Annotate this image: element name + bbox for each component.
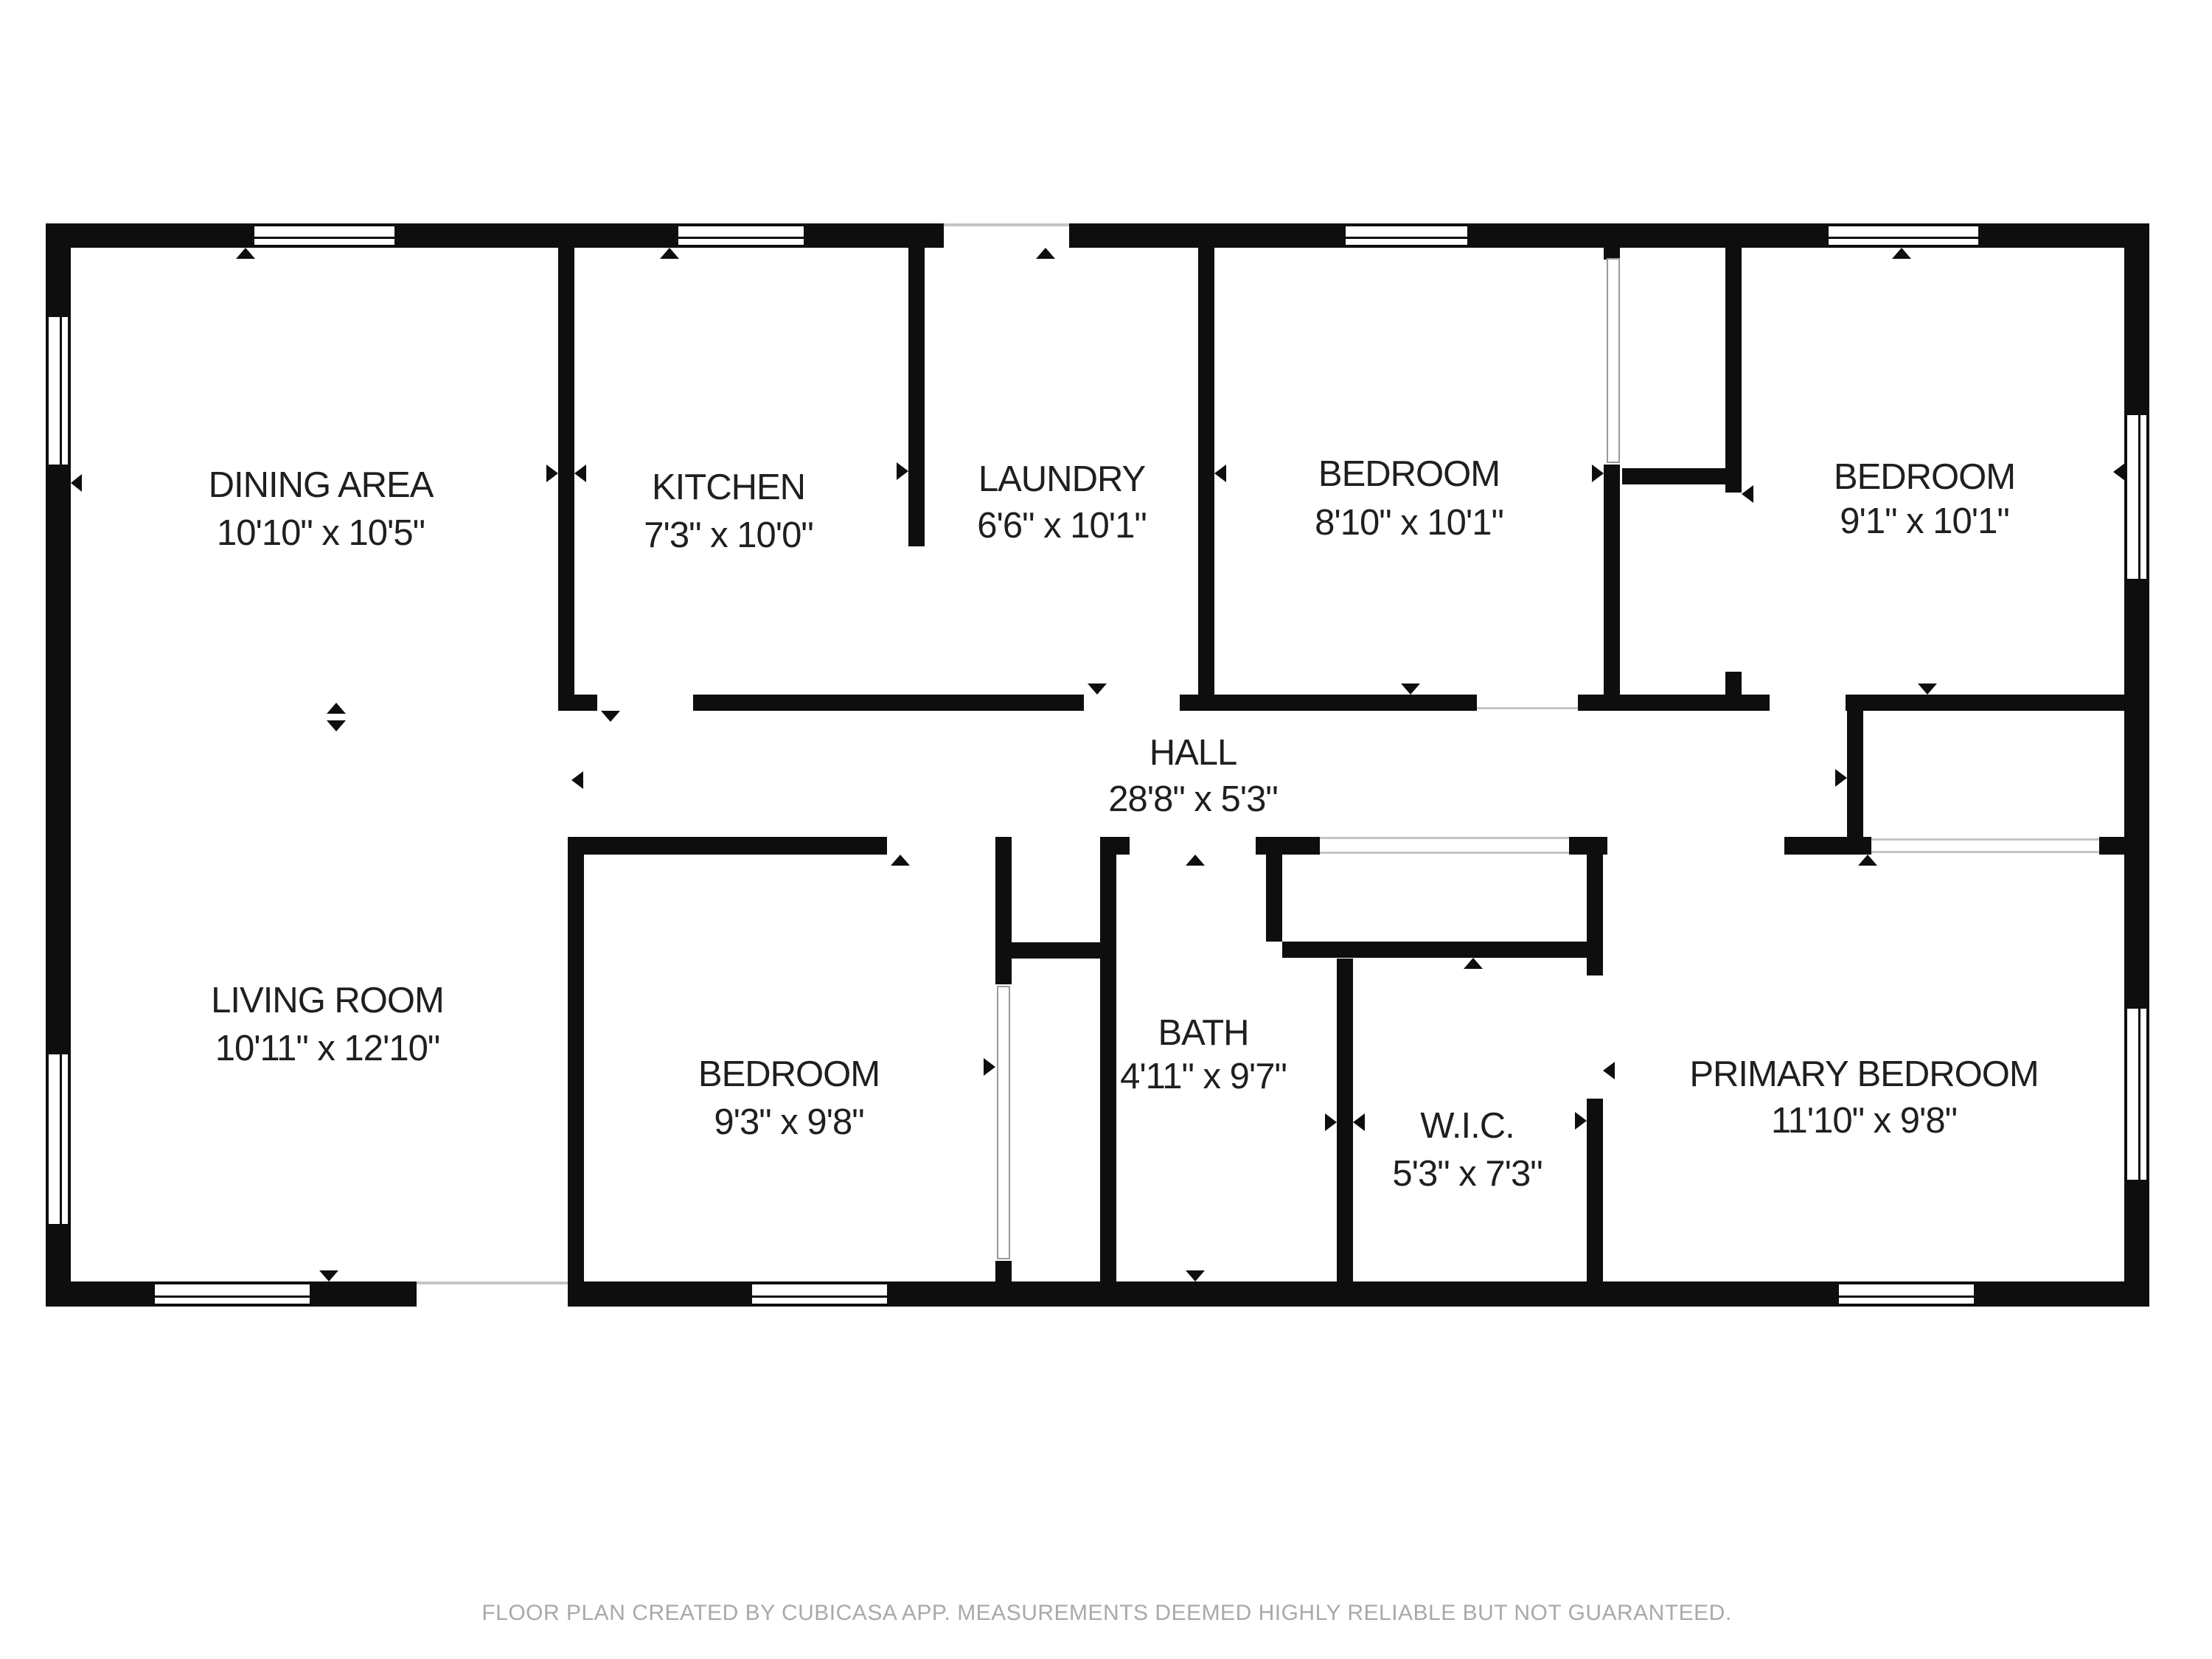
window-cap — [2124, 1001, 2149, 1009]
wall — [317, 1281, 417, 1307]
window-cap — [1821, 223, 1829, 248]
wall — [894, 1281, 1832, 1307]
wall — [568, 1281, 745, 1307]
window-pane-line — [1341, 237, 1472, 239]
wall — [2124, 223, 2149, 408]
room-label-w-i-c-9: W.I.C. — [1420, 1105, 1514, 1147]
door-arrow-icon — [71, 474, 82, 492]
opening-line — [1320, 852, 1569, 854]
wall — [1266, 853, 1282, 942]
door-arrow-icon — [546, 465, 558, 482]
door-leaf — [997, 986, 1010, 1259]
window — [1821, 223, 1986, 248]
wall — [1282, 942, 1587, 958]
wall — [908, 248, 925, 546]
window-cap — [1832, 1281, 1839, 1307]
room-dimensions-bedroom-4: 9'1" x 10'1" — [1840, 501, 2008, 542]
window-cap — [147, 1281, 155, 1307]
door-arrow-icon — [1835, 769, 1847, 787]
wall — [46, 472, 71, 1047]
door-arrow-icon — [1858, 855, 1877, 866]
window-cap — [745, 1281, 752, 1307]
door-arrow-icon — [891, 855, 910, 866]
opening-line — [417, 1281, 568, 1284]
window — [1338, 223, 1475, 248]
door-arrow-icon — [574, 465, 586, 482]
wall — [2124, 1187, 2149, 1307]
door-arrow-icon — [2113, 463, 2125, 481]
wall — [1846, 695, 2127, 711]
wall — [1100, 837, 1130, 855]
window — [247, 223, 402, 248]
door-arrow-icon — [327, 720, 346, 731]
room-dimensions-primary-bedroom-10: 11'10" x 9'8" — [1771, 1100, 1957, 1141]
window-cap — [1978, 223, 1986, 248]
floor-plan: FLOOR PLAN CREATED BY CUBICASA APP. MEAS… — [0, 0, 2212, 1659]
wall — [1604, 465, 1620, 711]
room-label-primary-bedroom-10: PRIMARY BEDROOM — [1689, 1054, 2038, 1095]
opening-line — [1320, 837, 1569, 839]
wall — [46, 223, 71, 310]
window-cap — [46, 1224, 71, 1231]
room-label-dining-area-0: DINING AREA — [209, 465, 434, 506]
window-pane-line — [1824, 237, 1983, 239]
door-arrow-icon — [1325, 1113, 1337, 1131]
wall — [568, 837, 584, 1307]
wall — [693, 695, 1084, 711]
door-arrow-icon — [1401, 684, 1420, 695]
door-arrow-icon — [1353, 1113, 1365, 1131]
wall — [1725, 248, 1742, 493]
door-arrow-icon — [601, 711, 620, 722]
wall — [2099, 837, 2127, 855]
wall — [1587, 1099, 1603, 1281]
door-arrow-icon — [1592, 465, 1604, 482]
opening-line — [1871, 851, 2099, 853]
window-pane-line — [674, 237, 808, 239]
window-pane-line — [2138, 1004, 2140, 1184]
wall — [402, 223, 671, 248]
window — [2124, 408, 2149, 586]
wall — [1198, 248, 1214, 711]
wall — [584, 837, 887, 855]
room-label-kitchen-1: KITCHEN — [652, 467, 805, 508]
door-arrow-icon — [1603, 1062, 1615, 1079]
window — [147, 1281, 317, 1307]
room-label-bath-8: BATH — [1158, 1012, 1248, 1054]
wall — [1256, 837, 1320, 855]
room-dimensions-dining-area-0: 10'10" x 10'5" — [217, 512, 425, 554]
room-label-living-room-6: LIVING ROOM — [211, 980, 444, 1021]
room-dimensions-w-i-c-9: 5'3" x 7'3" — [1392, 1153, 1542, 1194]
wall — [1847, 711, 1863, 838]
window-cap — [1974, 1281, 1981, 1307]
room-label-bedroom-3: BEDROOM — [1318, 453, 1500, 495]
window-pane-line — [1834, 1295, 1978, 1298]
room-label-bedroom-7: BEDROOM — [698, 1054, 880, 1095]
room-dimensions-bedroom-3: 8'10" x 10'1" — [1315, 502, 1503, 543]
door-arrow-icon — [660, 248, 679, 259]
room-label-laundry-2: LAUNDRY — [978, 459, 1145, 500]
window-pane-line — [60, 313, 62, 469]
wall — [811, 223, 944, 248]
window — [671, 223, 811, 248]
wall — [1012, 942, 1100, 959]
room-dimensions-bath-8: 4'11" x 9'7" — [1120, 1056, 1287, 1097]
room-label-hall-5: HALL — [1150, 732, 1237, 773]
wall — [574, 695, 597, 711]
window — [2124, 1001, 2149, 1187]
window-pane-line — [60, 1050, 62, 1228]
window — [1832, 1281, 1981, 1307]
wall — [1100, 837, 1116, 1307]
room-dimensions-kitchen-1: 7'3" x 10'0" — [644, 515, 813, 556]
door-arrow-icon — [984, 1058, 995, 1076]
door-arrow-icon — [1186, 855, 1205, 866]
door-leaf — [1607, 258, 1620, 463]
window-cap — [1467, 223, 1475, 248]
wall — [1622, 468, 1725, 484]
wall — [1069, 223, 1338, 248]
door-arrow-icon — [1575, 1112, 1587, 1130]
window-cap — [394, 223, 402, 248]
door-arrow-icon — [1186, 1270, 1205, 1281]
window-pane-line — [250, 237, 399, 239]
door-arrow-icon — [236, 248, 255, 259]
wall — [2124, 586, 2149, 1001]
window-cap — [247, 223, 254, 248]
wall — [46, 223, 247, 248]
door-arrow-icon — [1214, 465, 1226, 482]
wall — [995, 1261, 1012, 1281]
wall — [558, 248, 574, 711]
window-cap — [2124, 579, 2149, 586]
door-arrow-icon — [1892, 248, 1911, 259]
window-cap — [887, 1281, 894, 1307]
window-cap — [2124, 1180, 2149, 1187]
door-arrow-icon — [571, 771, 583, 789]
door-arrow-icon — [1464, 958, 1483, 969]
door-arrow-icon — [1036, 248, 1055, 259]
window-cap — [46, 310, 71, 317]
opening-line — [1477, 707, 1578, 709]
wall — [1784, 837, 1871, 855]
wall — [1569, 837, 1607, 855]
room-dimensions-laundry-2: 6'6" x 10'1" — [977, 505, 1146, 546]
opening-line — [1871, 838, 2099, 841]
window-cap — [2124, 408, 2149, 415]
door-arrow-icon — [897, 462, 908, 480]
window-cap — [1338, 223, 1346, 248]
room-dimensions-hall-5: 28'8" x 5'3" — [1108, 779, 1277, 820]
door-arrow-icon — [1742, 485, 1753, 503]
room-dimensions-living-room-6: 10'11" x 12'10" — [215, 1028, 440, 1069]
footer-disclaimer: FLOOR PLAN CREATED BY CUBICASA APP. MEAS… — [481, 1601, 1731, 1626]
window-cap — [671, 223, 678, 248]
window-pane-line — [150, 1295, 314, 1298]
window — [745, 1281, 894, 1307]
wall — [46, 1231, 71, 1307]
wall — [1578, 695, 1770, 711]
window-cap — [46, 1047, 71, 1054]
wall — [1587, 837, 1603, 975]
window-cap — [804, 223, 811, 248]
wall — [1180, 695, 1477, 711]
door-arrow-icon — [1088, 684, 1107, 695]
opening-line — [944, 223, 1069, 226]
room-dimensions-bedroom-7: 9'3" x 9'8" — [714, 1102, 863, 1143]
window-cap — [310, 1281, 317, 1307]
wall — [995, 837, 1012, 984]
window-pane-line — [748, 1295, 891, 1298]
wall — [1337, 959, 1353, 1281]
room-label-bedroom-4: BEDROOM — [1834, 456, 2015, 498]
window — [46, 310, 71, 472]
door-arrow-icon — [1918, 684, 1937, 695]
window-cap — [46, 465, 71, 472]
wall — [1475, 223, 1821, 248]
door-arrow-icon — [327, 703, 346, 714]
door-arrow-icon — [319, 1270, 338, 1281]
window-pane-line — [2138, 411, 2140, 583]
window — [46, 1047, 71, 1231]
